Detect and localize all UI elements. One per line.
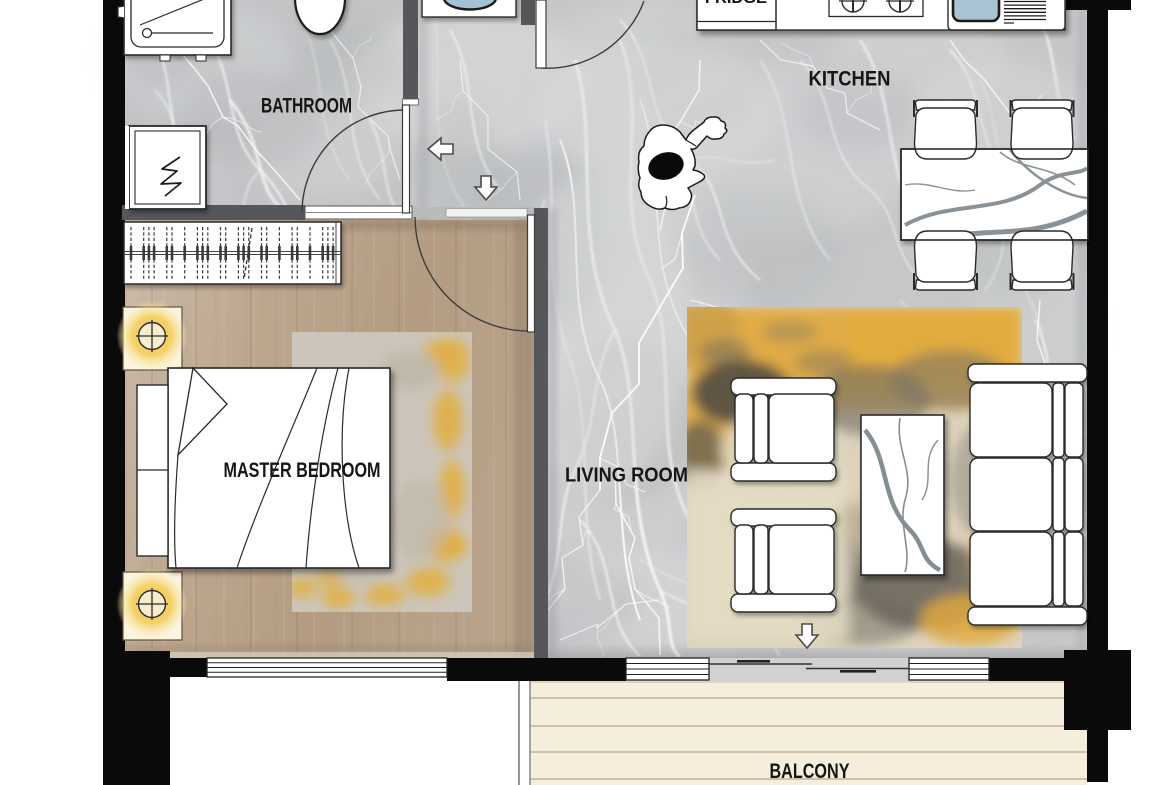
svg-text:FRIDGE: FRIDGE	[705, 0, 767, 7]
svg-text:BATHROOM: BATHROOM	[261, 95, 352, 118]
svg-text:LIVING ROOM: LIVING ROOM	[565, 465, 688, 487]
svg-text:BALCONY: BALCONY	[770, 760, 850, 783]
svg-text:MASTER BEDROOM: MASTER BEDROOM	[224, 459, 381, 482]
svg-text:KITCHEN: KITCHEN	[809, 68, 891, 91]
